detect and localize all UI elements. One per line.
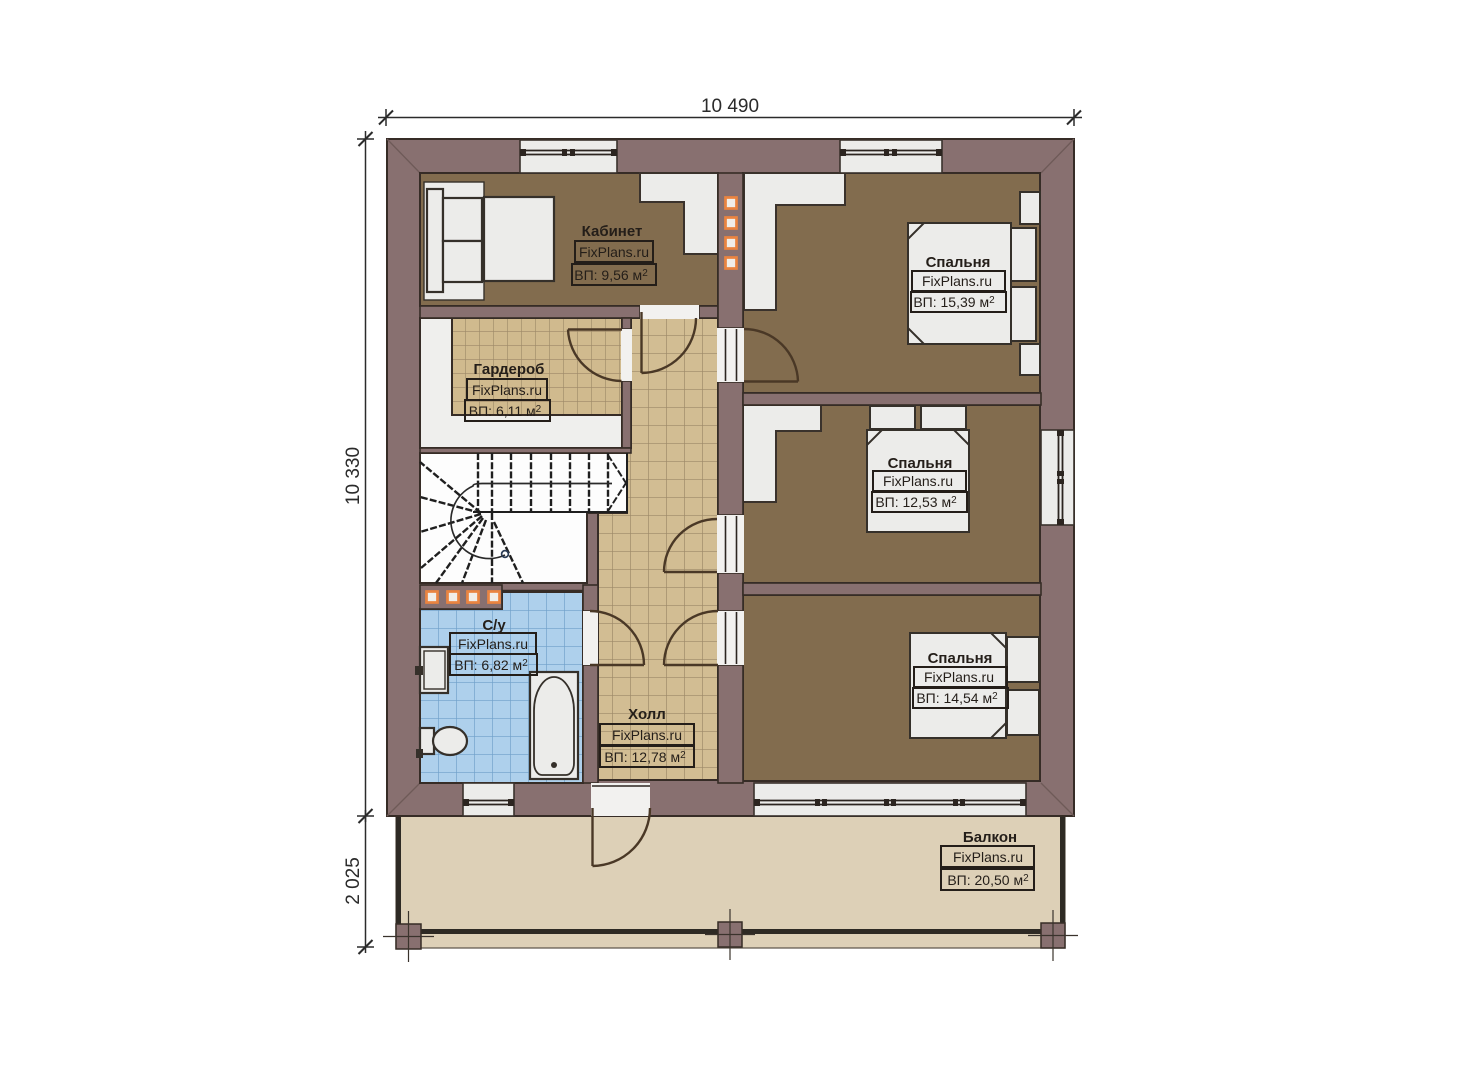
svg-text:ВП: 14,54 м2: ВП: 14,54 м2: [916, 690, 998, 706]
svg-text:Гардероб: Гардероб: [474, 361, 545, 378]
svg-text:10 490: 10 490: [701, 96, 759, 117]
svg-text:FixPlans.ru: FixPlans.ru: [924, 669, 994, 685]
svg-text:ВП: 6,82 м2: ВП: 6,82 м2: [454, 657, 528, 673]
svg-text:FixPlans.ru: FixPlans.ru: [472, 382, 542, 398]
svg-text:10 330: 10 330: [343, 447, 364, 505]
svg-text:FixPlans.ru: FixPlans.ru: [883, 473, 953, 489]
svg-text:ВП: 12,53 м2: ВП: 12,53 м2: [875, 494, 957, 510]
svg-text:ВП: 6,11 м2: ВП: 6,11 м2: [469, 403, 542, 419]
svg-text:ВП: 12,78 м2: ВП: 12,78 м2: [604, 749, 686, 765]
svg-text:Спальня: Спальня: [888, 455, 953, 472]
svg-text:Кабинет: Кабинет: [582, 223, 643, 240]
svg-text:Холл: Холл: [628, 706, 666, 723]
svg-text:FixPlans.ru: FixPlans.ru: [458, 636, 528, 652]
svg-text:2 025: 2 025: [343, 857, 364, 905]
svg-text:Спальня: Спальня: [928, 650, 993, 667]
svg-text:Спальня: Спальня: [926, 254, 991, 271]
svg-text:ВП: 9,56 м2: ВП: 9,56 м2: [574, 267, 648, 283]
svg-text:FixPlans.ru: FixPlans.ru: [579, 244, 649, 260]
svg-text:FixPlans.ru: FixPlans.ru: [612, 727, 682, 743]
svg-text:ВП: 15,39 м2: ВП: 15,39 м2: [913, 294, 995, 310]
svg-text:FixPlans.ru: FixPlans.ru: [922, 273, 992, 289]
svg-text:С/у: С/у: [482, 617, 506, 634]
svg-text:FixPlans.ru: FixPlans.ru: [953, 849, 1023, 865]
svg-text:Балкон: Балкон: [963, 829, 1017, 846]
svg-text:ВП: 20,50 м2: ВП: 20,50 м2: [947, 872, 1029, 888]
